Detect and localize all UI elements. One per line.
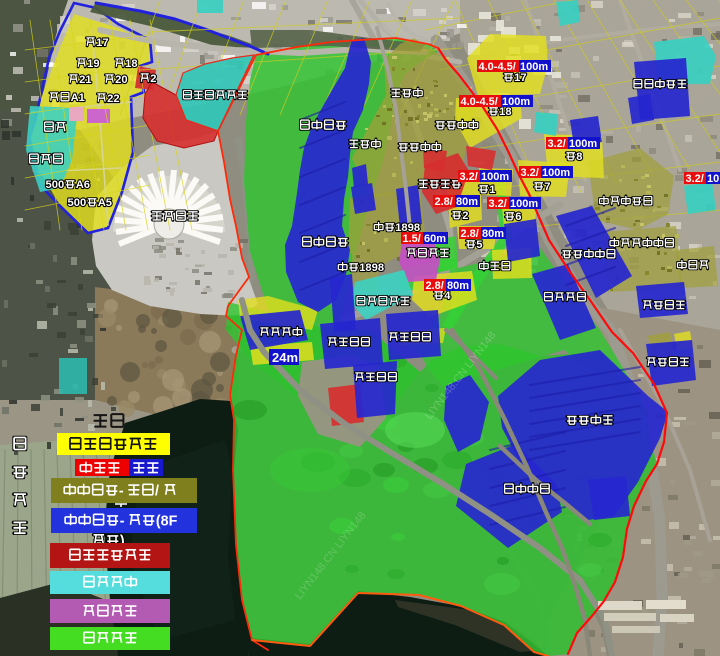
svg-text:(8F: (8F	[156, 513, 178, 529]
svg-text:-: -	[120, 513, 125, 529]
svg-text:2.8/: 2.8/	[461, 228, 479, 240]
svg-text:2: 2	[150, 73, 156, 85]
svg-text:22: 22	[107, 93, 119, 105]
svg-text:80m: 80m	[482, 228, 504, 240]
svg-text:60m: 60m	[424, 233, 446, 245]
svg-text:18: 18	[499, 106, 511, 118]
svg-text:100m: 100m	[502, 96, 530, 108]
svg-text:4: 4	[444, 290, 451, 302]
svg-text:1898: 1898	[359, 262, 384, 274]
svg-text:A5: A5	[98, 197, 112, 209]
svg-text:100m: 100m	[520, 61, 548, 73]
svg-text:100m: 100m	[542, 167, 570, 179]
svg-text:8: 8	[576, 151, 582, 163]
svg-text:100m: 100m	[481, 171, 509, 183]
svg-text:3.2/: 3.2/	[686, 173, 704, 185]
svg-text:7: 7	[544, 181, 550, 193]
svg-text:3.2/: 3.2/	[460, 171, 478, 183]
svg-text:21: 21	[79, 74, 91, 86]
svg-text:1.5/: 1.5/	[403, 233, 421, 245]
svg-text:17: 17	[96, 37, 108, 49]
svg-text:80m: 80m	[456, 196, 478, 208]
svg-text:3.2/: 3.2/	[548, 138, 566, 150]
svg-text:17: 17	[514, 72, 526, 84]
svg-text:A6: A6	[76, 179, 90, 191]
svg-text:-: -	[119, 483, 124, 499]
svg-text:100m: 100m	[569, 138, 597, 150]
svg-text:500: 500	[68, 197, 87, 209]
svg-text:10: 10	[707, 173, 719, 185]
svg-text:500: 500	[46, 179, 65, 191]
svg-text:2.8/: 2.8/	[435, 196, 453, 208]
svg-text:5: 5	[476, 239, 482, 251]
svg-text:2.8/: 2.8/	[426, 280, 444, 292]
svg-text:/: /	[155, 483, 159, 499]
svg-text:4.0-4.5/: 4.0-4.5/	[461, 96, 498, 108]
svg-text:3.2/: 3.2/	[489, 198, 507, 210]
svg-text:24m: 24m	[272, 350, 298, 365]
svg-text:19: 19	[87, 58, 99, 70]
svg-text:20: 20	[115, 74, 127, 86]
svg-text:2: 2	[462, 210, 468, 222]
svg-text:1: 1	[489, 184, 495, 196]
svg-text:4.0-4.5/: 4.0-4.5/	[479, 61, 516, 73]
svg-text:6: 6	[515, 211, 521, 223]
svg-text:100m: 100m	[510, 198, 538, 210]
svg-text:A1: A1	[71, 92, 85, 104]
svg-text:80m: 80m	[447, 280, 469, 292]
svg-text:18: 18	[125, 58, 137, 70]
svg-text:3.2/: 3.2/	[521, 167, 539, 179]
